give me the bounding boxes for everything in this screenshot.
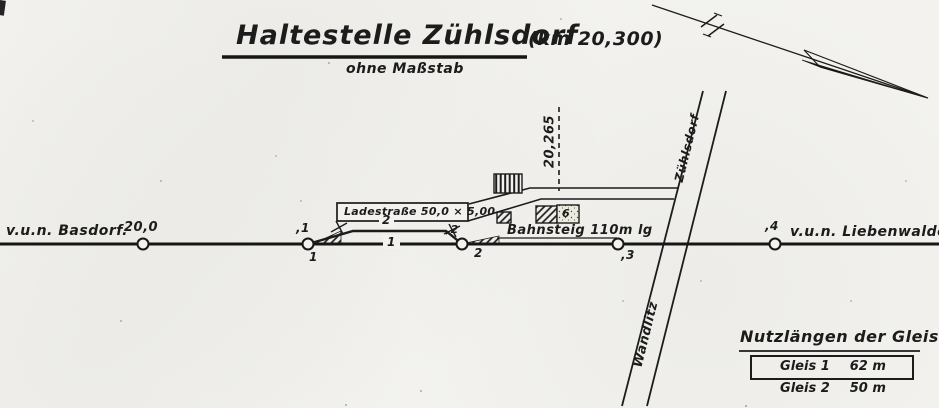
endpoint-label-liebenwalde: v.u.n. Liebenwalde [790, 224, 939, 240]
page-title: Haltestelle Zühlsdorf [236, 20, 578, 51]
north-arrow-icon [652, 5, 928, 98]
building-number-label: 6 [562, 207, 570, 220]
paper-noise-speckles [328, 62, 330, 64]
platform-label: Bahnsteig 110m lg [507, 223, 653, 238]
table-cell-track-name: Gleis 1 [780, 359, 830, 374]
km-marker-label-20-1: ,1 [296, 221, 310, 235]
loading-road-label: Ladestraße 50,0 × 5,00 [344, 205, 495, 218]
table-row: Gleis 1 62 m [752, 359, 914, 374]
km-marker-label-20-4: ,4 [765, 219, 779, 233]
km-marker-label-20-3: ,3 [621, 248, 635, 262]
track-lengths-table-heading: Nutzlängen der Gleise [740, 327, 939, 346]
track-number-main: 1 [383, 235, 400, 249]
track-plan-scan: Haltestelle Zühlsdorf (km 20,300) ohne M… [0, 0, 939, 408]
table-row: Gleis 2 50 m [752, 381, 914, 396]
km-marker-label-20-2: ,2 [446, 223, 459, 236]
station-centre-km-label: 20,265 [543, 111, 558, 173]
title-kilometre: (km 20,300) [528, 28, 663, 50]
table-cell-track-name: Gleis 2 [780, 381, 830, 396]
table-cell-track-length: 62 m [850, 359, 886, 374]
diagram-drawing [0, 0, 939, 408]
table-cell-track-length: 50 m [850, 381, 886, 396]
switch-2-number: 2 [474, 246, 483, 260]
km-marker-label-20-0: 20,0 [124, 220, 158, 235]
switch-1-number: 1 [309, 250, 318, 264]
scale-note: ohne Maßstab [346, 61, 464, 77]
endpoint-label-basdorf: v.u.n. Basdorf. [6, 223, 128, 239]
